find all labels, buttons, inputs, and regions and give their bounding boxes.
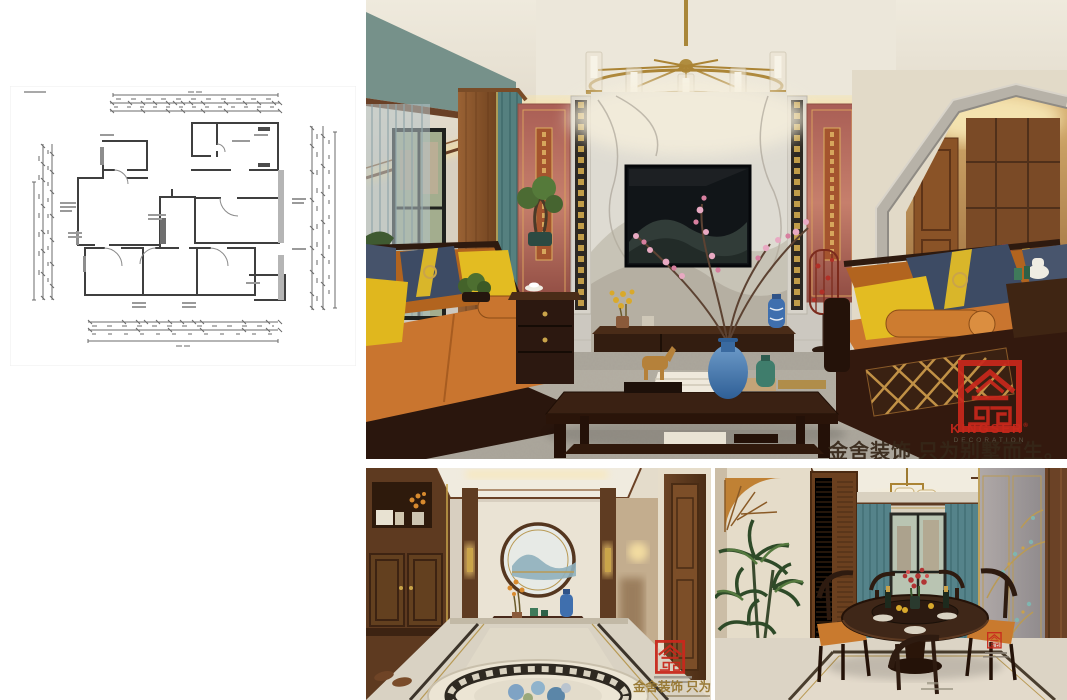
sheet-label <box>24 91 46 93</box>
floorplan-panel <box>10 86 356 366</box>
living-room-photo: KINGSER® DECORATION 金舍装饰 只为别墅而生。 <box>366 0 1067 459</box>
floorplan-sheet <box>10 86 356 366</box>
hallway-photo: 金舍装饰 只为别墅而生 <box>366 468 711 700</box>
logo-wordmark: KINGSER® <box>950 421 1030 436</box>
interior-design-collage: KINGSER® DECORATION 金舍装饰 只为别墅而生。 <box>0 0 1067 700</box>
brand-slogan: 金舍装饰 只为别墅而生。 <box>827 439 1065 459</box>
brand-slogan-small: 金舍装饰 只为别墅而生 <box>632 679 711 694</box>
right-sofa <box>824 242 1067 459</box>
yellow-pillow-2 <box>366 278 408 346</box>
dining-room-photo <box>715 468 1067 700</box>
tv <box>626 166 750 266</box>
sofa-side-table <box>508 283 582 385</box>
armrest <box>824 298 850 372</box>
floorplan-drawing <box>10 86 356 366</box>
round-art <box>502 524 576 596</box>
blue-white-jar <box>768 298 785 328</box>
